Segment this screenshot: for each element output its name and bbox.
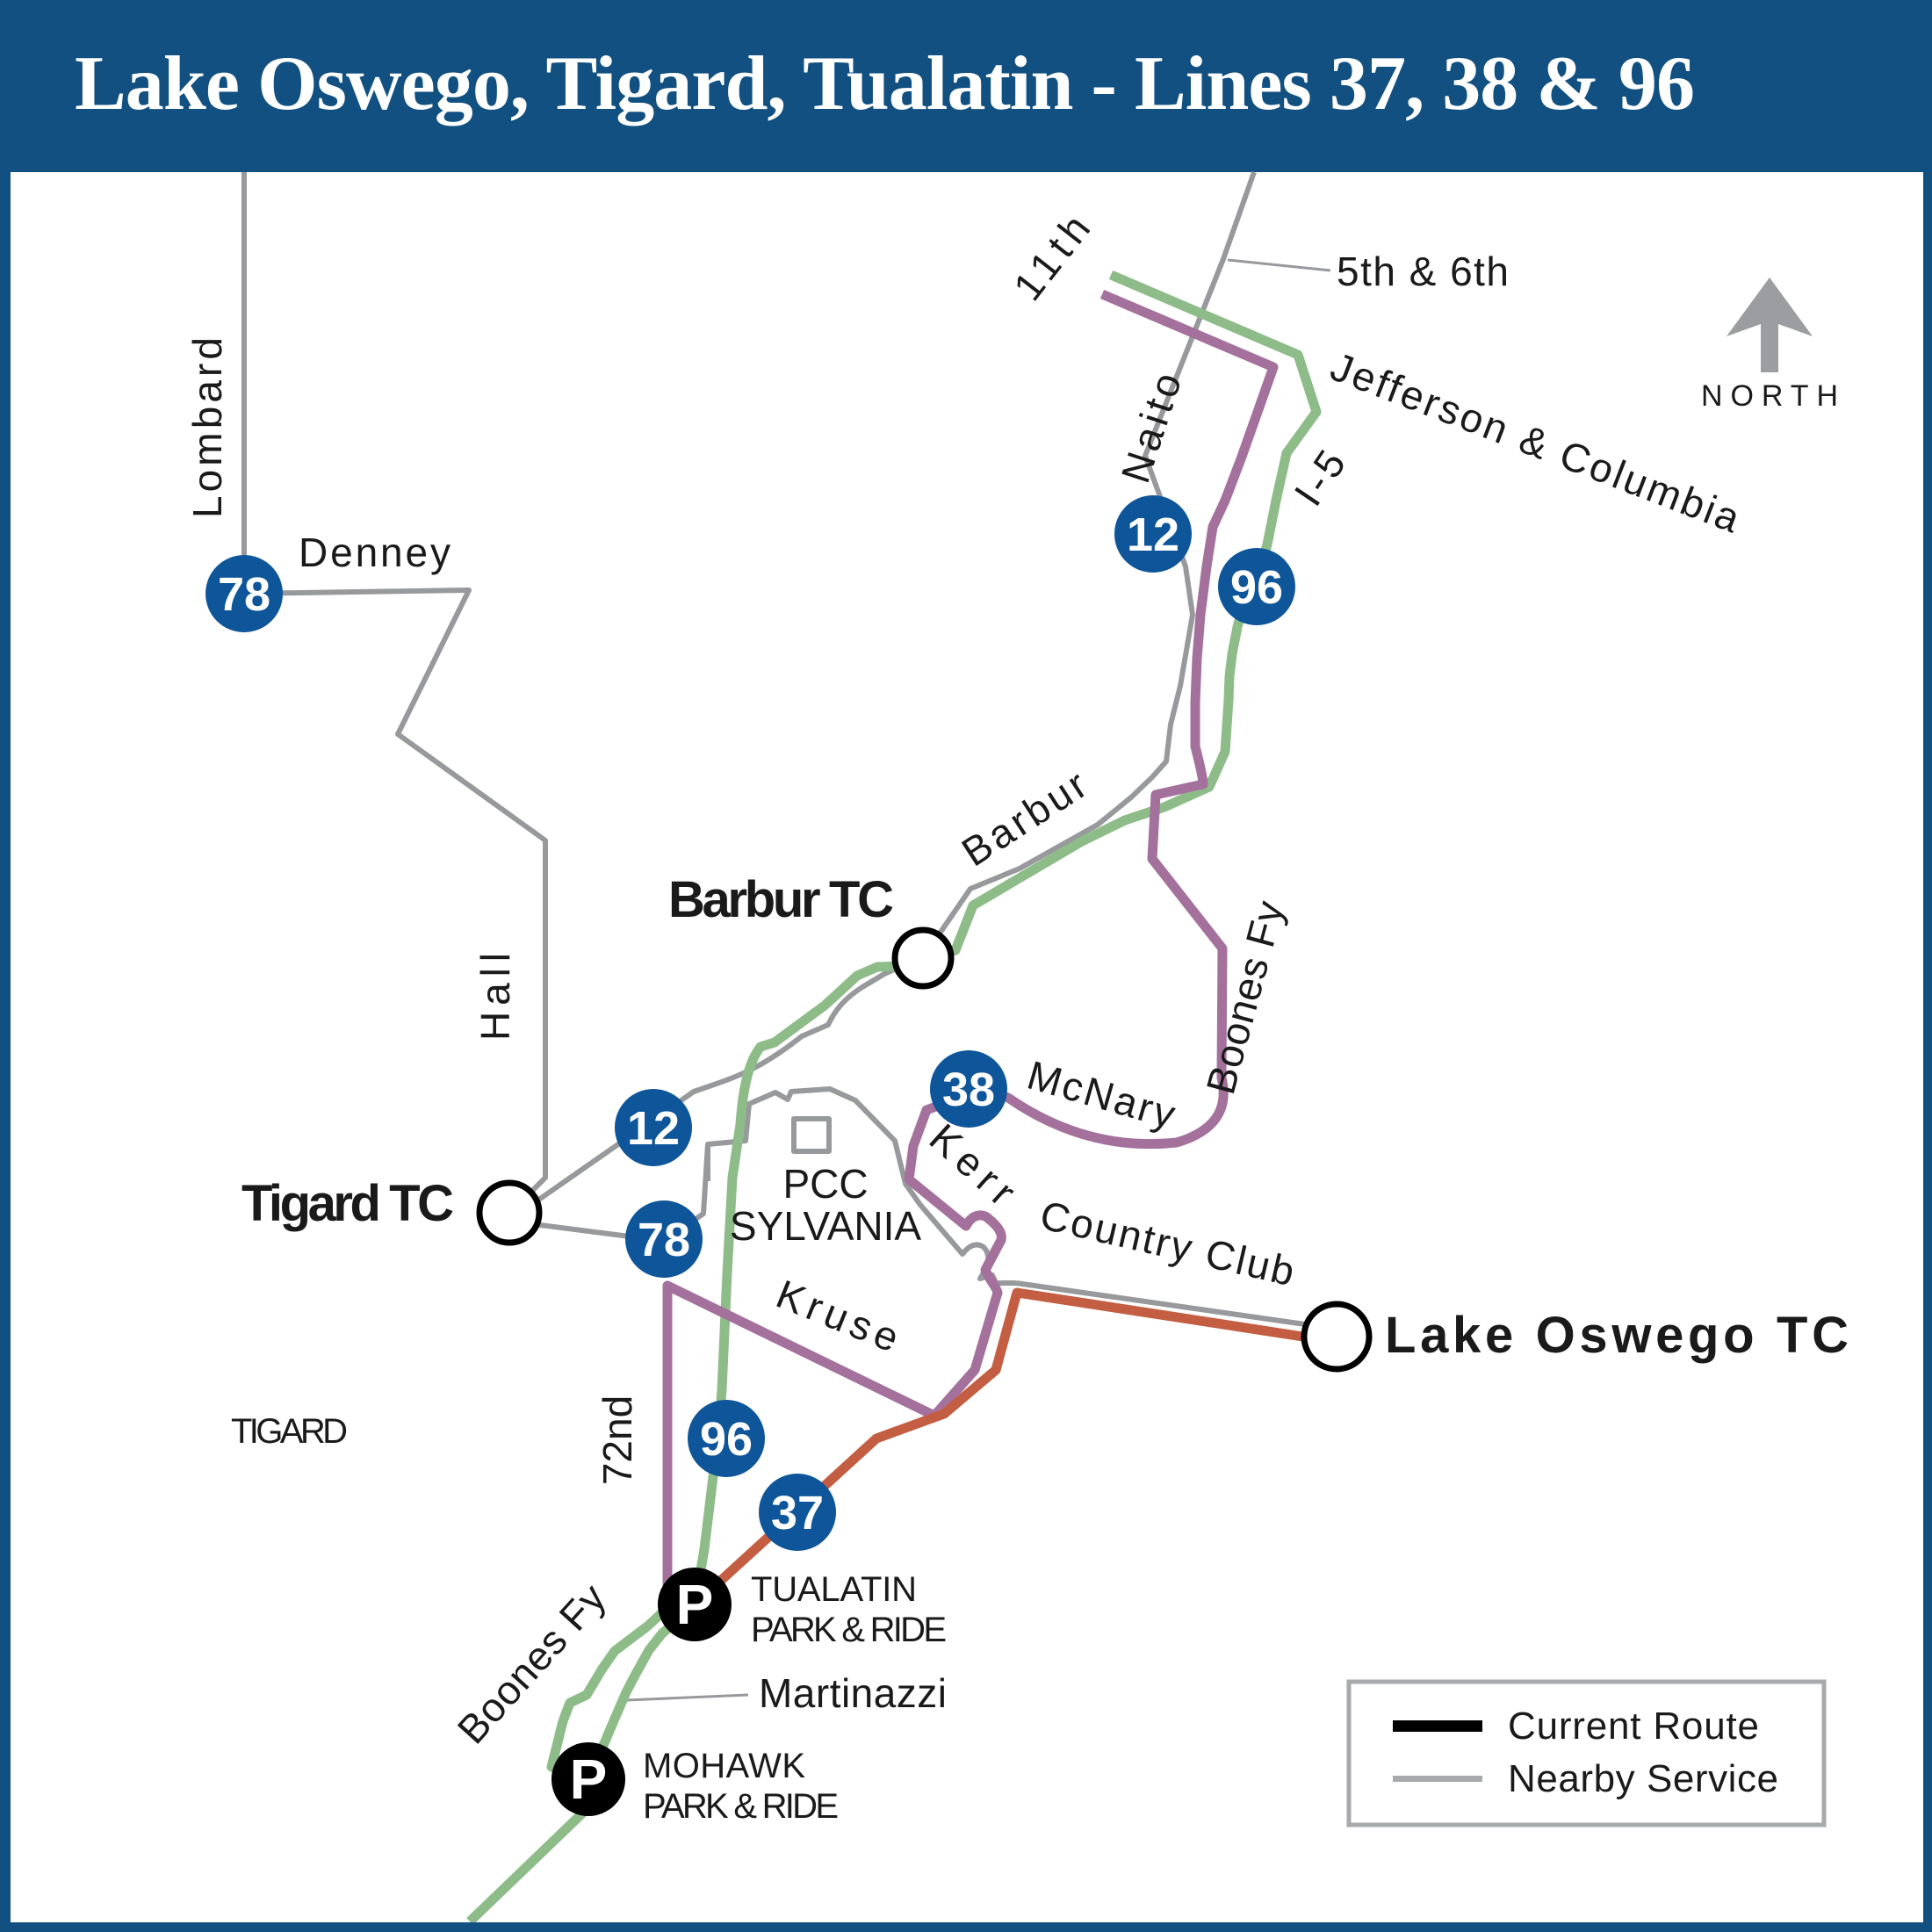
svg-text:TUALATIN: TUALATIN xyxy=(751,1570,917,1609)
svg-text:Martinazzi: Martinazzi xyxy=(759,1670,947,1716)
svg-text:Current Route: Current Route xyxy=(1508,1705,1759,1748)
svg-text:12: 12 xyxy=(627,1102,680,1155)
svg-text:Nearby Service: Nearby Service xyxy=(1508,1757,1778,1800)
svg-text:38: 38 xyxy=(942,1063,995,1116)
svg-text:78: 78 xyxy=(218,568,270,621)
svg-text:P: P xyxy=(570,1748,608,1811)
svg-text:NORTH: NORTH xyxy=(1701,379,1838,413)
svg-text:Lake Oswego TC: Lake Oswego TC xyxy=(1385,1307,1849,1364)
svg-text:PARK & RIDE: PARK & RIDE xyxy=(751,1611,947,1649)
svg-text:Barbur TC: Barbur TC xyxy=(668,871,894,928)
svg-text:96: 96 xyxy=(1230,561,1283,614)
svg-text:SYLVANIA: SYLVANIA xyxy=(730,1203,921,1249)
svg-text:Lombard: Lombard xyxy=(184,337,230,518)
svg-text:5th & 6th: 5th & 6th xyxy=(1337,249,1509,294)
svg-text:Lake Oswego, Tigard, Tualatin: Lake Oswego, Tigard, Tualatin - Lines 37… xyxy=(75,41,1695,126)
svg-text:Denney: Denney xyxy=(299,530,451,575)
svg-text:MOHAWK: MOHAWK xyxy=(643,1747,805,1785)
svg-text:12: 12 xyxy=(1127,508,1179,561)
svg-text:96: 96 xyxy=(700,1413,753,1466)
svg-text:Tigard TC: Tigard TC xyxy=(241,1175,454,1232)
svg-text:PCC: PCC xyxy=(782,1161,868,1207)
svg-text:P: P xyxy=(676,1573,714,1636)
svg-text:78: 78 xyxy=(638,1214,690,1266)
svg-text:TIGARD: TIGARD xyxy=(231,1412,348,1451)
svg-text:PARK & RIDE: PARK & RIDE xyxy=(643,1787,839,1826)
svg-text:72nd: 72nd xyxy=(595,1395,640,1485)
svg-text:37: 37 xyxy=(771,1487,824,1539)
